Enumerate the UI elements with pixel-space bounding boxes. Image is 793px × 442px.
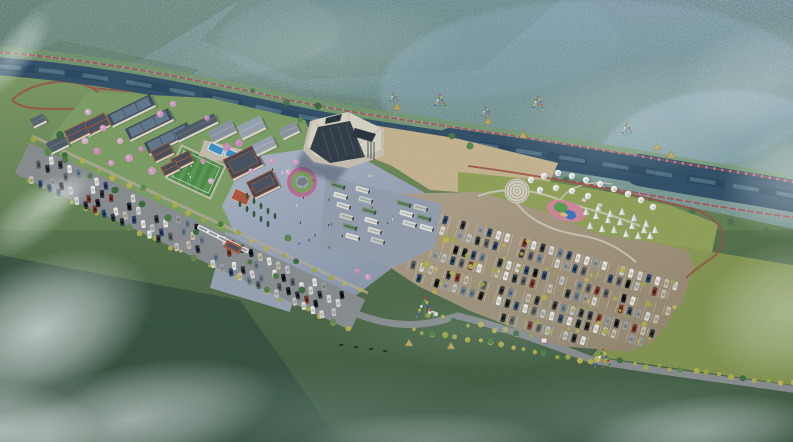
film-grain	[0, 0, 793, 442]
clouds-mist	[0, 0, 793, 442]
scene-svg	[0, 0, 793, 442]
aerial-rendering	[0, 0, 793, 442]
